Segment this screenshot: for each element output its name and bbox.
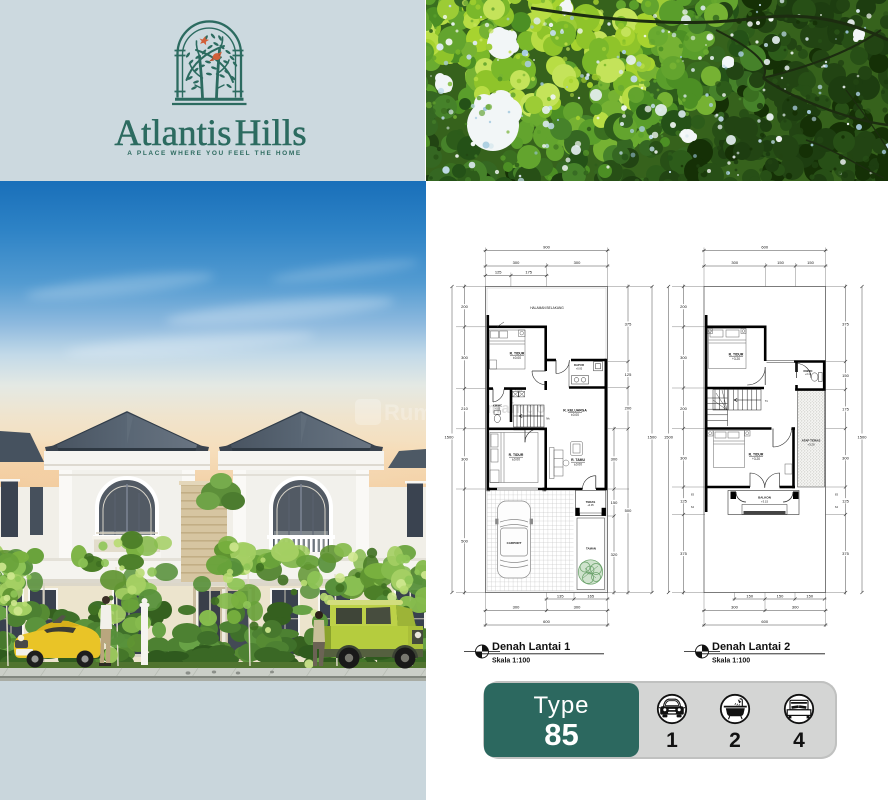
- svg-text:300: 300: [461, 456, 468, 461]
- svg-text:300: 300: [574, 260, 581, 265]
- svg-text:375: 375: [842, 322, 849, 327]
- svg-text:200: 200: [680, 406, 687, 411]
- svg-text:+3.15: +3.15: [805, 373, 812, 376]
- svg-text:CARPORT: CARPORT: [507, 541, 522, 545]
- svg-text:175: 175: [842, 407, 849, 412]
- svg-text:Rum: Rum: [384, 400, 426, 425]
- svg-text:600: 600: [543, 619, 550, 624]
- svg-text:300: 300: [680, 355, 687, 360]
- svg-text:300: 300: [842, 455, 849, 460]
- svg-text:64: 64: [691, 505, 694, 509]
- svg-text:600: 600: [761, 245, 768, 250]
- svg-text:1500: 1500: [858, 435, 868, 440]
- svg-text:83: 83: [691, 493, 694, 497]
- svg-text:Denah Lantai 1: Denah Lantai 1: [492, 641, 570, 653]
- svg-text:1500: 1500: [445, 435, 455, 440]
- svg-text:HALAMAN BELAKANG: HALAMAN BELAKANG: [530, 306, 564, 310]
- svg-text:150: 150: [611, 500, 618, 505]
- svg-text:64: 64: [835, 505, 838, 509]
- svg-text:Denah Lantai 2: Denah Lantai 2: [712, 641, 790, 653]
- svg-text:500: 500: [461, 538, 468, 543]
- svg-text:±0.00: ±0.00: [571, 413, 579, 417]
- svg-text:Skala 1:100: Skala 1:100: [492, 658, 530, 665]
- svg-text:Skala 1:100: Skala 1:100: [712, 658, 750, 665]
- svg-text:300: 300: [611, 456, 618, 461]
- svg-text:300: 300: [680, 455, 687, 460]
- svg-text:300: 300: [731, 605, 738, 610]
- svg-text:R. TIDUR: R. TIDUR: [749, 453, 764, 457]
- svg-text:2: 2: [729, 729, 741, 752]
- svg-text:375: 375: [842, 551, 849, 556]
- svg-text:210: 210: [461, 406, 468, 411]
- svg-text:±0.00: ±0.00: [513, 356, 521, 360]
- svg-text:165: 165: [587, 594, 594, 599]
- svg-text:150: 150: [807, 260, 814, 265]
- svg-text:Nk: Nk: [546, 417, 550, 421]
- svg-text:175: 175: [525, 270, 532, 275]
- svg-text:TAMAN: TAMAN: [586, 547, 596, 551]
- svg-text:1500: 1500: [664, 435, 674, 440]
- svg-text:+0.05: +0.05: [587, 504, 594, 507]
- svg-text:1500: 1500: [648, 435, 658, 440]
- svg-text:R.CUCI: R.CUCI: [515, 389, 523, 391]
- svg-text:300: 300: [461, 355, 468, 360]
- svg-text:300: 300: [731, 260, 738, 265]
- svg-text:375: 375: [680, 551, 687, 556]
- svg-text:135: 135: [557, 594, 564, 599]
- svg-text:+3.20: +3.20: [807, 443, 815, 447]
- svg-text:150: 150: [806, 594, 813, 599]
- svg-text:83: 83: [835, 493, 838, 497]
- svg-text:+0.00: +0.00: [576, 367, 583, 370]
- svg-text:200: 200: [461, 304, 468, 309]
- svg-text:±0.00: ±0.00: [574, 463, 582, 467]
- svg-text:R. KELUARGA: R. KELUARGA: [563, 409, 587, 413]
- svg-text:600: 600: [761, 619, 768, 624]
- svg-text:375: 375: [625, 322, 632, 327]
- svg-text:R. TIDUR: R. TIDUR: [509, 453, 524, 457]
- svg-text:+3.20: +3.20: [732, 357, 740, 361]
- svg-text:+3.20: +3.20: [752, 457, 760, 461]
- svg-text:125: 125: [680, 498, 687, 503]
- svg-text:±0.00: ±0.00: [512, 458, 520, 462]
- svg-text:150: 150: [777, 594, 784, 599]
- svg-text:4: 4: [793, 729, 805, 752]
- svg-text:Tn: Tn: [765, 399, 769, 403]
- svg-text:150: 150: [842, 373, 849, 378]
- svg-text:200: 200: [680, 304, 687, 309]
- svg-text:-0.05: -0.05: [495, 407, 501, 410]
- svg-text:300: 300: [513, 260, 520, 265]
- svg-text:125: 125: [495, 270, 502, 275]
- svg-text:300: 300: [792, 605, 799, 610]
- svg-text:900: 900: [543, 245, 550, 250]
- svg-text:500: 500: [625, 508, 632, 513]
- svg-text:+3.15: +3.15: [761, 499, 769, 503]
- svg-text:300: 300: [574, 605, 581, 610]
- svg-text:125: 125: [842, 498, 849, 503]
- svg-text:R. TIDUR: R. TIDUR: [729, 353, 744, 357]
- svg-text:300: 300: [513, 605, 520, 610]
- svg-text:125: 125: [625, 372, 632, 377]
- svg-text:320: 320: [611, 552, 618, 557]
- svg-text:150: 150: [746, 594, 753, 599]
- svg-text:200: 200: [625, 406, 632, 411]
- svg-text:150: 150: [777, 260, 784, 265]
- svg-text:R. TAMU: R. TAMU: [571, 458, 585, 462]
- svg-text:1: 1: [666, 729, 678, 752]
- svg-text:R. TIDUR: R. TIDUR: [510, 352, 525, 356]
